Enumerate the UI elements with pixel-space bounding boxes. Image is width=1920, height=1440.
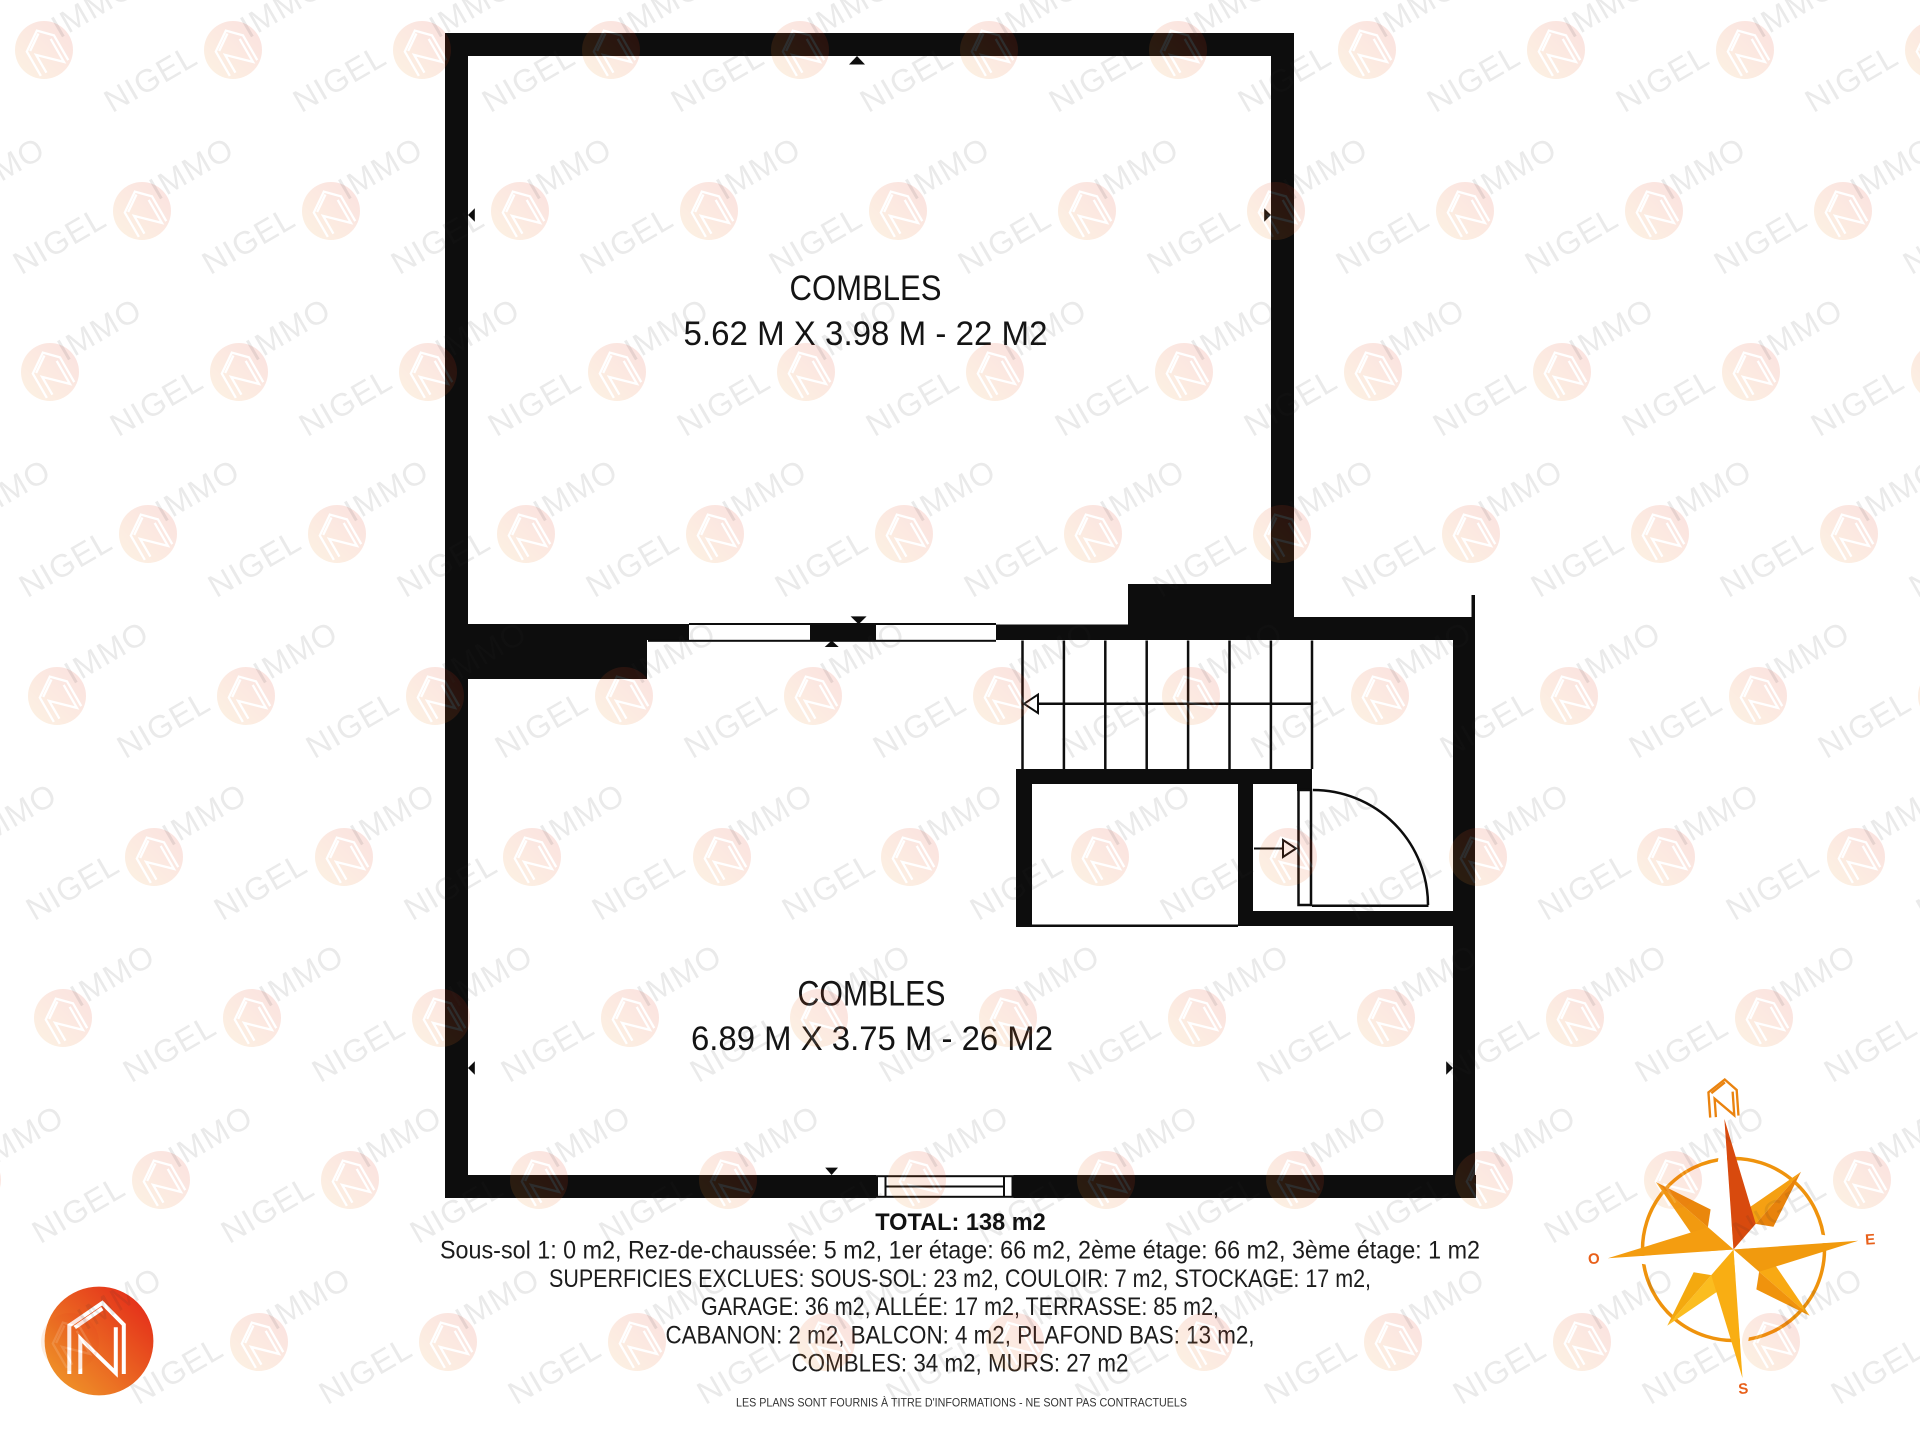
svg-text:LES PLANS SONT FOURNIS À TITRE: LES PLANS SONT FOURNIS À TITRE D'INFORMA… bbox=[736, 1394, 1187, 1409]
svg-text:E: E bbox=[1865, 1231, 1876, 1249]
svg-text:S: S bbox=[1738, 1380, 1749, 1398]
svg-text:O: O bbox=[1587, 1250, 1600, 1268]
svg-text:6.89 M X 3.75 M - 26 M2: 6.89 M X 3.75 M - 26 M2 bbox=[691, 1020, 1053, 1058]
svg-text:COMBLES: COMBLES bbox=[798, 975, 946, 1014]
svg-text:COMBLES: 34 m2, MURS: 27 m2: COMBLES: 34 m2, MURS: 27 m2 bbox=[792, 1350, 1129, 1378]
svg-text:COMBLES: COMBLES bbox=[790, 269, 942, 308]
svg-text:GARAGE: 36 m2, ALLÉE: 17 m2, T: GARAGE: 36 m2, ALLÉE: 17 m2, TERRASSE: 8… bbox=[701, 1292, 1219, 1321]
svg-text:Sous-sol 1: 0 m2, Rez-de-chaus: Sous-sol 1: 0 m2, Rez-de-chaussée: 5 m2,… bbox=[440, 1237, 1480, 1265]
svg-text:5.62 M X 3.98 M - 22 M2: 5.62 M X 3.98 M - 22 M2 bbox=[684, 315, 1048, 353]
svg-text:TOTAL: 138 m2: TOTAL: 138 m2 bbox=[875, 1209, 1046, 1236]
svg-text:CABANON: 2 m2, BALCON: 4 m2, P: CABANON: 2 m2, BALCON: 4 m2, PLAFOND BAS… bbox=[666, 1321, 1255, 1349]
svg-text:SUPERFICIES EXCLUES: SOUS-SOL:: SUPERFICIES EXCLUES: SOUS-SOL: 23 m2, CO… bbox=[549, 1265, 1371, 1293]
